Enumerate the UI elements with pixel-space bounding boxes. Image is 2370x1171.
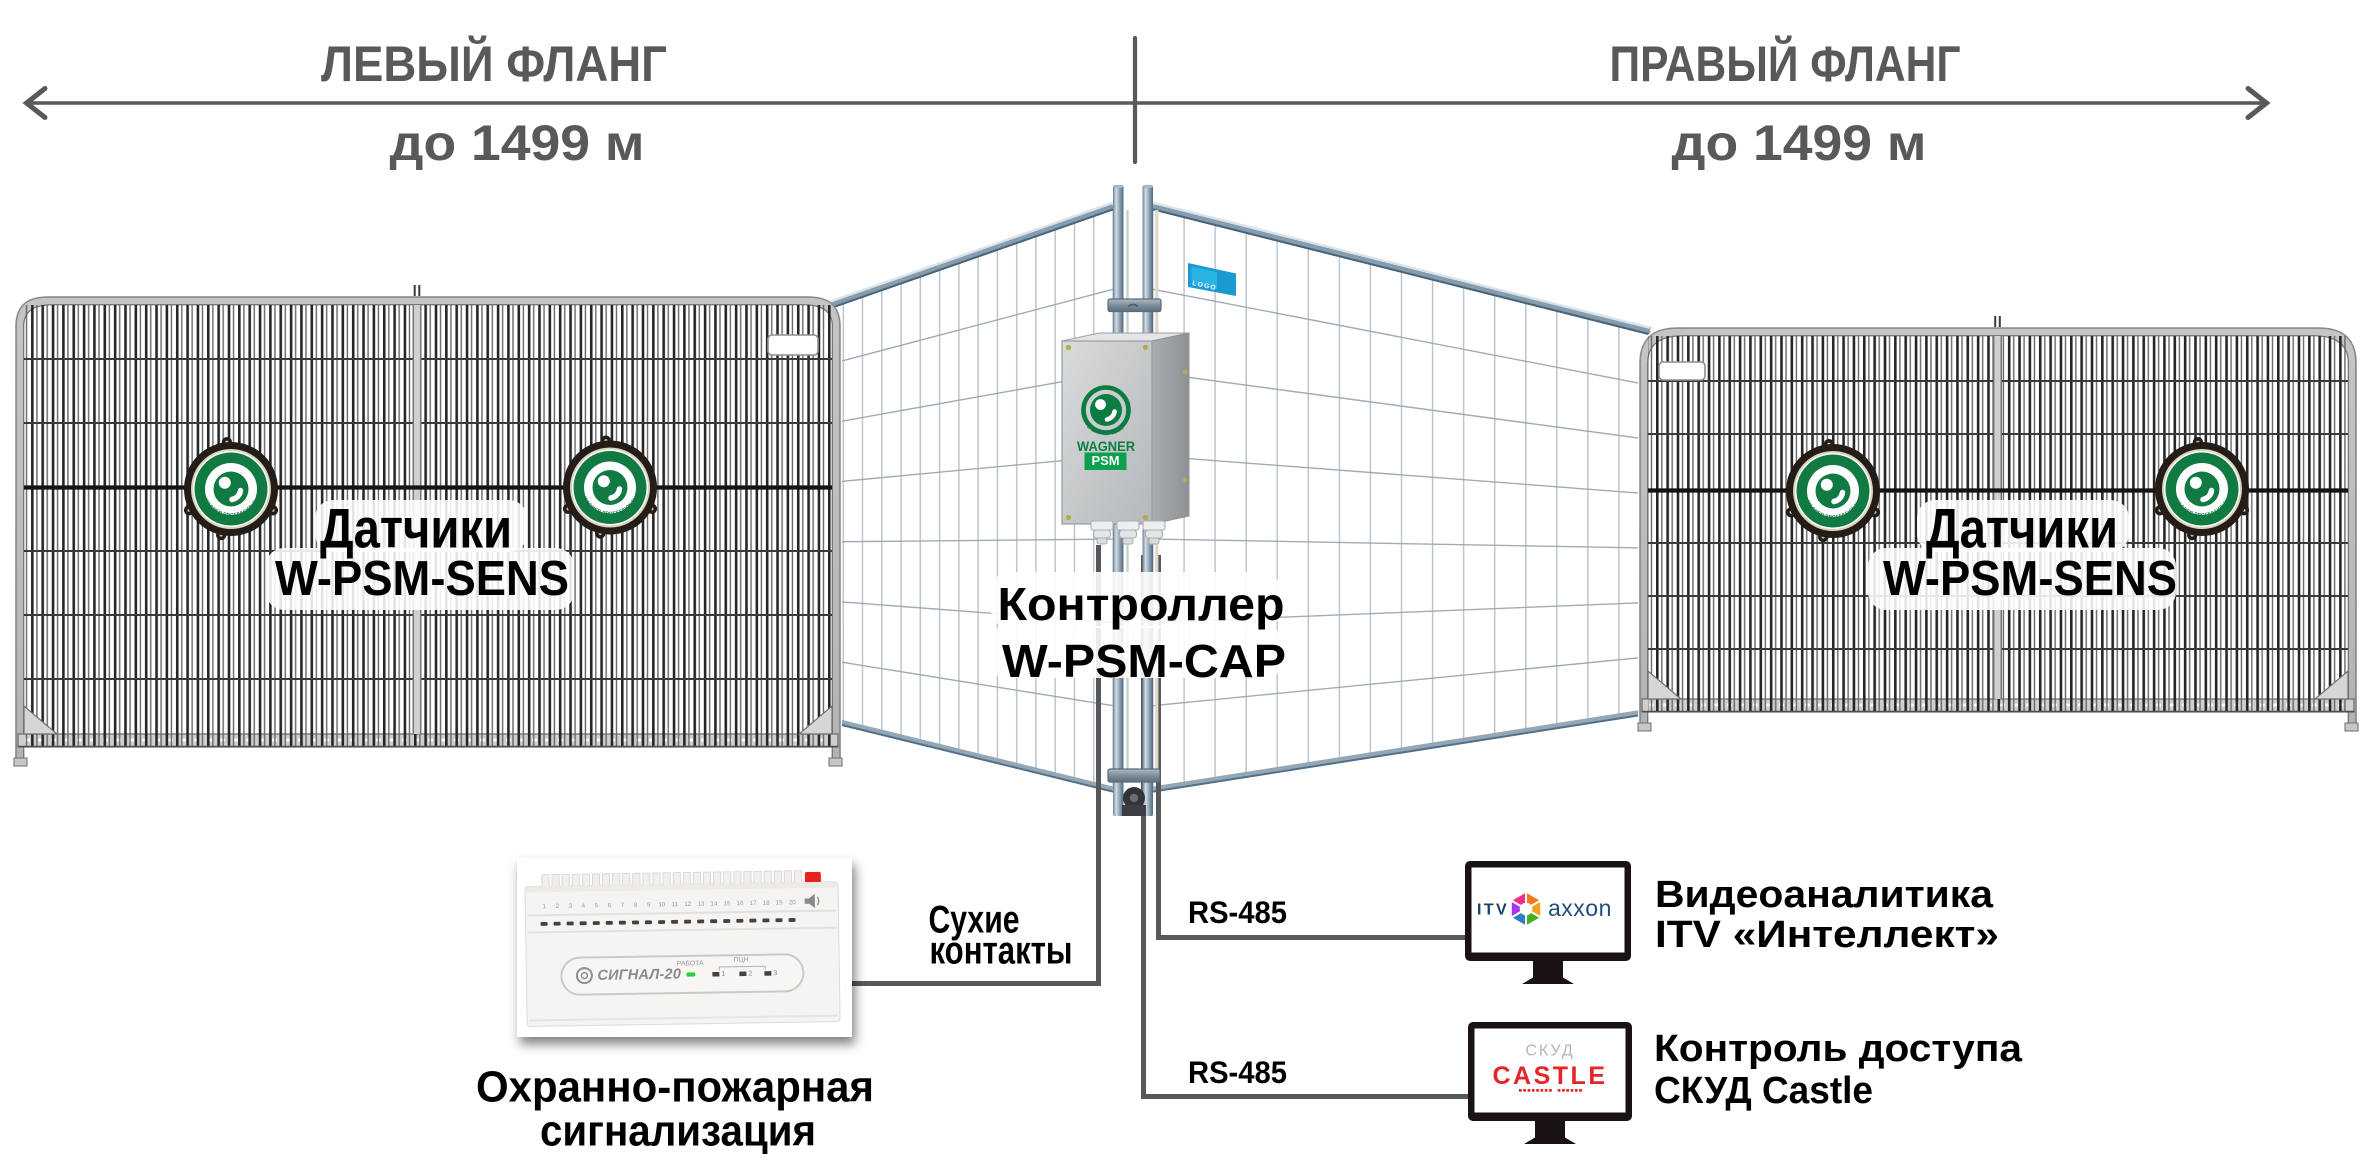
svg-text:1: 1 xyxy=(721,971,725,978)
svg-text:2: 2 xyxy=(748,970,752,977)
svg-text:СИГНАЛ-20: СИГНАЛ-20 xyxy=(597,967,681,984)
svg-text:Охранно-пожарная: Охранно-пожарная xyxy=(476,1063,874,1112)
svg-text:RS-485: RS-485 xyxy=(1188,894,1287,930)
svg-text:W-PSM-SENS: W-PSM-SENS xyxy=(275,552,569,606)
svg-text:до 1499 м: до 1499 м xyxy=(1672,115,1927,171)
svg-text:сигнализация: сигнализация xyxy=(540,1107,816,1156)
svg-text:16: 16 xyxy=(737,900,745,907)
svg-text:axxon: axxon xyxy=(1548,895,1612,921)
svg-text:Контроль доступа: Контроль доступа xyxy=(1654,1028,2023,1070)
svg-text:RS-485: RS-485 xyxy=(1188,1054,1287,1090)
svg-text:Контроллер: Контроллер xyxy=(998,578,1285,630)
svg-text:14: 14 xyxy=(710,900,718,907)
svg-text:контакты: контакты xyxy=(930,930,1073,973)
svg-text:ITV: ITV xyxy=(1477,902,1509,919)
svg-text:ПРАВЫЙ ФЛАНГ: ПРАВЫЙ ФЛАНГ xyxy=(1610,35,1961,92)
svg-text:СКУД Castle: СКУД Castle xyxy=(1654,1070,1873,1112)
svg-text:17: 17 xyxy=(750,900,758,907)
svg-text:СКУД: СКУД xyxy=(1525,1043,1574,1060)
svg-text:12: 12 xyxy=(684,901,692,908)
svg-text:13: 13 xyxy=(697,901,705,908)
svg-text:РАБОТА: РАБОТА xyxy=(677,960,704,967)
svg-text:ITV «Интеллект»: ITV «Интеллект» xyxy=(1655,914,1999,956)
svg-text:PSM: PSM xyxy=(1092,454,1120,468)
svg-text:WAGNER: WAGNER xyxy=(1077,438,1135,454)
svg-text:CASTLE: CASTLE xyxy=(1493,1062,1608,1090)
svg-text:Датчики: Датчики xyxy=(320,497,512,560)
svg-text:3: 3 xyxy=(773,970,777,977)
svg-text:ПЦН: ПЦН xyxy=(734,956,749,963)
svg-text:W-PSM-CAP: W-PSM-CAP xyxy=(1002,635,1286,687)
svg-text:Датчики: Датчики xyxy=(1926,497,2118,560)
svg-text:W-PSM-SENS: W-PSM-SENS xyxy=(1883,552,2177,606)
svg-text:ЛЕВЫЙ ФЛАНГ: ЛЕВЫЙ ФЛАНГ xyxy=(321,35,667,92)
svg-text:18: 18 xyxy=(763,900,771,907)
svg-text:19: 19 xyxy=(776,899,784,906)
svg-text:10: 10 xyxy=(658,901,666,908)
svg-text:15: 15 xyxy=(723,900,731,907)
svg-text:11: 11 xyxy=(672,901,679,908)
svg-text:20: 20 xyxy=(789,899,797,906)
svg-text:Видеоаналитика: Видеоаналитика xyxy=(1655,874,1994,916)
svg-text:до 1499 м: до 1499 м xyxy=(390,115,645,171)
